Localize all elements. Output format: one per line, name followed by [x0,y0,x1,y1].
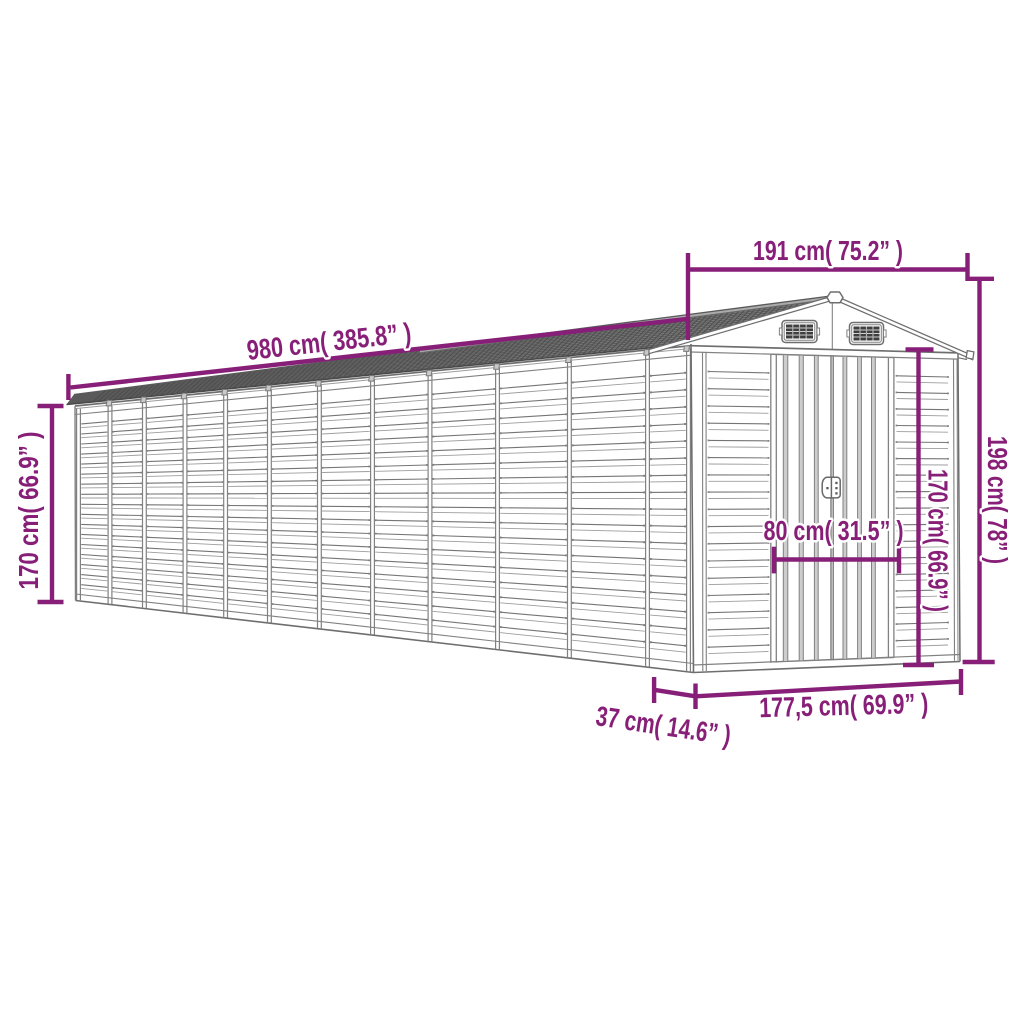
svg-text:191 cm( 75.2” ): 191 cm( 75.2” ) [753,235,903,266]
svg-text:80 cm( 31.5” ): 80 cm( 31.5” ) [764,515,904,546]
svg-text:177,5 cm( 69.9” ): 177,5 cm( 69.9” ) [759,688,929,723]
svg-text:170 cm( 66.9” ): 170 cm( 66.9” ) [13,432,44,590]
svg-text:198 cm( 78” ): 198 cm( 78” ) [982,436,1013,564]
svg-text:170 cm( 66.9” ): 170 cm( 66.9” ) [923,469,954,612]
